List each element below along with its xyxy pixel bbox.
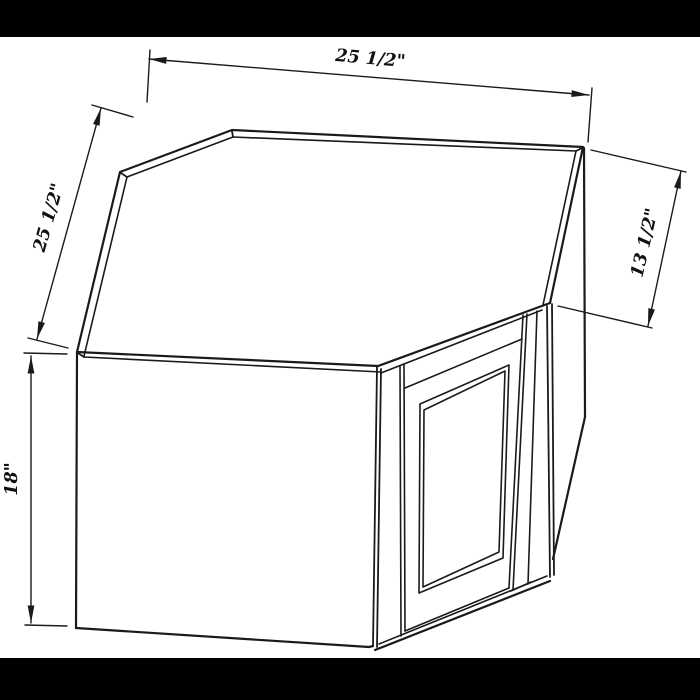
cabinet-line-drawing: 25 1/2" 25 1/2" 13 1/2" 18" (0, 37, 700, 658)
cabinet-right-side-panel (547, 148, 585, 577)
door-right-edge (509, 315, 523, 588)
cabinet-diagonal-face (375, 311, 550, 650)
drawing-canvas: 25 1/2" 25 1/2" 13 1/2" 18" (0, 37, 700, 658)
extension-line (147, 50, 150, 102)
front-corner-arris-outer (373, 367, 377, 646)
top-rim-inner-right-side (543, 151, 576, 305)
front-corner-arris-inner (377, 369, 381, 647)
door-panel-groove-outer (419, 365, 509, 593)
top-rim-inner-back-left (127, 137, 233, 177)
dimension-height: 18" (2, 353, 67, 626)
dimension-label-top-width: 25 1/2" (334, 46, 407, 72)
rim-corner-left (121, 173, 127, 177)
door-bottom-edge (405, 588, 509, 631)
right-stile-left-edge (513, 314, 527, 590)
dimension-label-right-depth: 13 1/2" (627, 206, 662, 279)
front-left-panel-left-edge (76, 352, 77, 628)
right-front-corner-arris-outer (547, 306, 550, 577)
right-panel-bottom-edge (553, 417, 585, 559)
left-stile-right-edge (400, 366, 401, 636)
cabinet-front-left-panel (76, 352, 381, 647)
front-left-panel-bottom-edge (76, 628, 373, 647)
rim-corner-right (576, 148, 582, 151)
door-left-edge (404, 364, 405, 631)
cabinet-top-rim (77, 130, 583, 373)
extension-line (24, 353, 67, 354)
extension-line (25, 625, 67, 626)
right-front-corner-arris-inner (552, 304, 554, 575)
rim-corner-back (232, 131, 233, 137)
extension-line (558, 306, 652, 328)
extension-line (28, 338, 68, 348)
top-rim-outer-edge (77, 130, 583, 366)
extension-line (591, 150, 686, 172)
extension-line (92, 105, 133, 117)
right-stile-right-edge (528, 311, 537, 584)
door-panel-groove-inner (423, 371, 505, 587)
screenshot-stage: 25 1/2" 25 1/2" 13 1/2" 18" (0, 0, 700, 700)
extension-line (588, 88, 592, 142)
letterbox-bar-bottom (0, 658, 700, 700)
dimension-label-height: 18" (2, 462, 22, 495)
rim-corner-front-left (78, 353, 84, 357)
dimension-left-width: 25 1/2" (28, 105, 133, 348)
dimension-top-width: 25 1/2" (147, 46, 592, 142)
letterbox-bar-top (0, 0, 700, 37)
top-rim-inner-left-side (84, 177, 127, 356)
right-panel-back-edge (584, 148, 585, 417)
